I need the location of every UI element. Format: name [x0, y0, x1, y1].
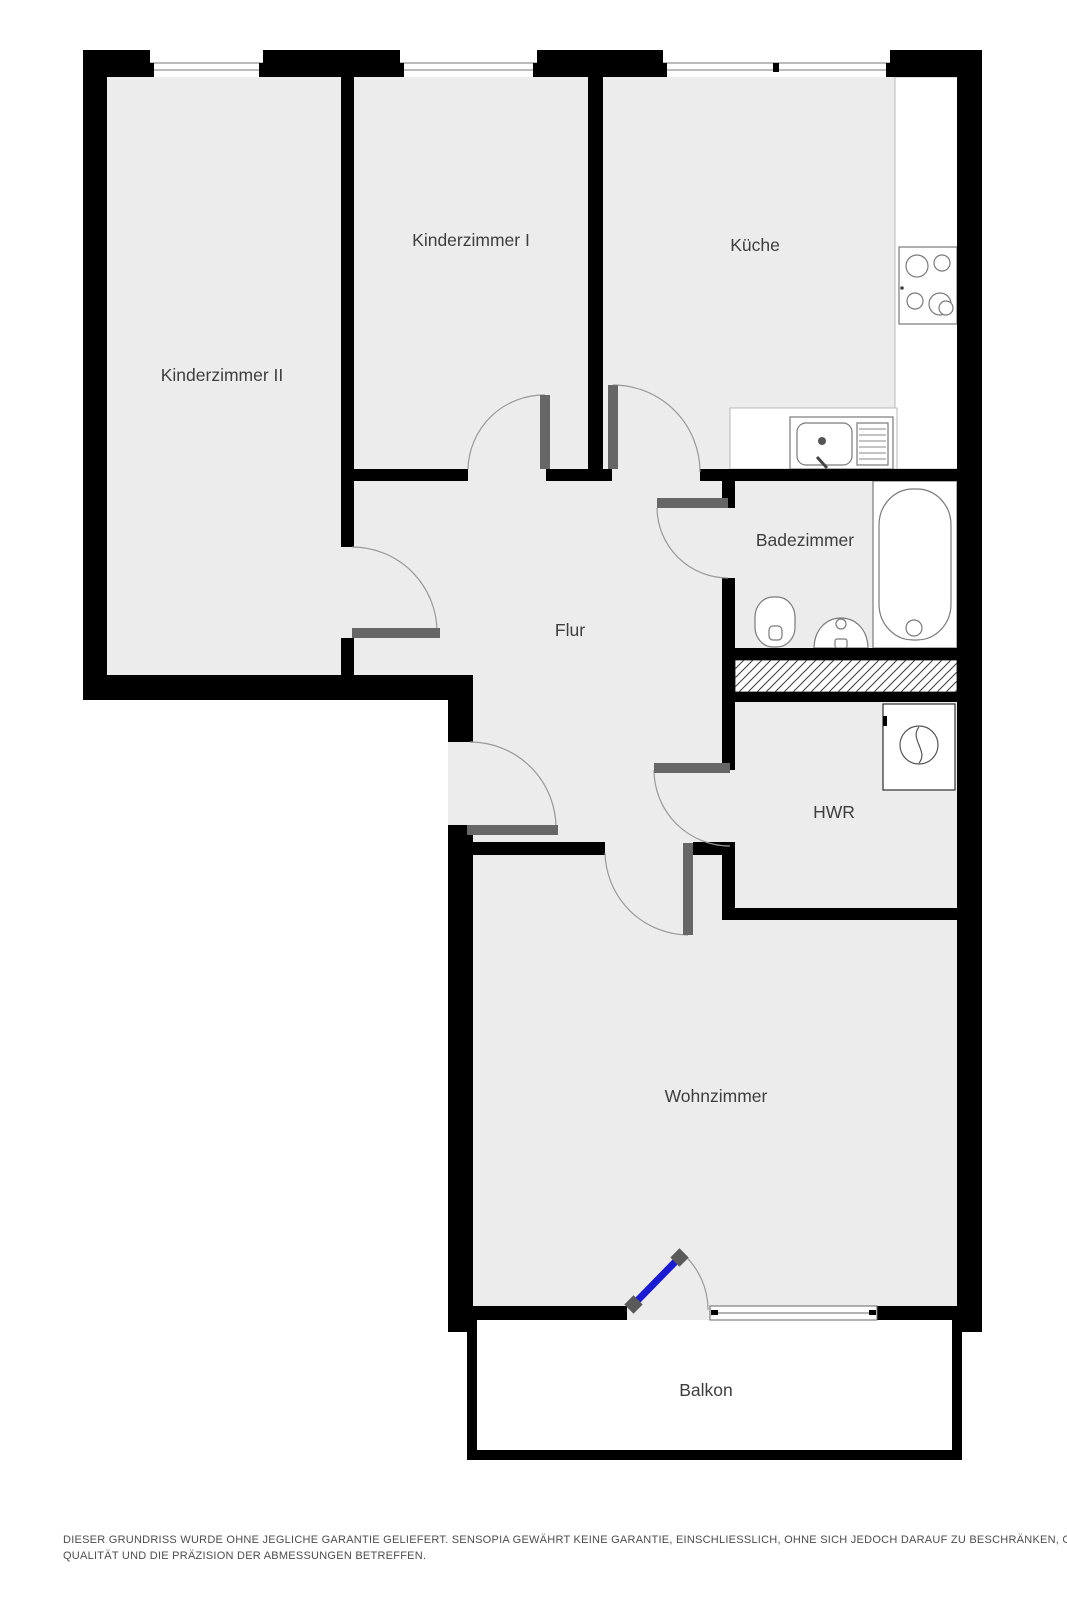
door-leaf-wohnzimmer [683, 843, 693, 935]
stove-burner [907, 293, 923, 309]
window-kinderzimmer1 [400, 50, 537, 77]
room-label-badezimmer: Badezimmer [756, 530, 854, 550]
stove-knob [900, 286, 904, 290]
floorplan-page: Kinderzimmer II Kinderzimmer I Küche Bad… [0, 0, 1067, 1600]
wall-hwr-bottom [722, 908, 957, 920]
wall-left-upper [83, 50, 107, 700]
wall-balcony-right [952, 1320, 962, 1460]
window-kinderzimmer2 [150, 50, 263, 77]
washbasin-faucet [835, 639, 847, 648]
room-label-kinderzimmer2: Kinderzimmer II [161, 365, 284, 385]
door-leaf-kinderzimmer1 [540, 395, 550, 469]
kitchen-sink [790, 417, 893, 469]
room-label-balkon: Balkon [679, 1380, 733, 1400]
room-label-wohnzimmer: Wohnzimmer [665, 1086, 768, 1106]
wall-wohnzimmer-bottom [448, 1306, 627, 1320]
room-label-kueche: Küche [730, 235, 780, 255]
wall-flur-top [341, 469, 468, 481]
wall-left-lower [448, 825, 473, 1332]
stove-burner [934, 255, 950, 271]
wall-right [957, 50, 982, 1332]
room-label-hwr: HWR [813, 802, 855, 822]
washbasin-drain [836, 619, 846, 629]
room-label-flur: Flur [555, 620, 585, 640]
wall-bad-left [722, 578, 735, 702]
toilet [755, 597, 795, 647]
disclaimer-line-1: DIESER GRUNDRISS WURDE OHNE JEGLICHE GAR… [63, 1534, 1067, 1546]
door-leaf-kueche [608, 385, 618, 469]
wall-balcony-bottom [467, 1450, 962, 1460]
wall-kueche-bad [700, 469, 957, 481]
shaft-hatch [735, 660, 957, 692]
door-leaf-kinderzimmer2 [352, 628, 440, 638]
window-kueche [663, 50, 890, 77]
wall-balcony-left [467, 1320, 477, 1460]
wall-kinderzimmer2-bottom [83, 675, 473, 700]
stove [899, 247, 957, 324]
wall-hwr-left [722, 702, 735, 770]
wall-wohnzimmer-top [470, 842, 605, 855]
door-leaf-badezimmer [657, 498, 728, 508]
room-label-kinderzimmer1: Kinderzimmer I [412, 230, 530, 250]
bathtub [873, 481, 957, 648]
stove-burner [906, 255, 928, 277]
window-wohnzimmer [710, 1306, 877, 1320]
bathtub-drain [906, 620, 922, 636]
door-leaf-entrance [467, 825, 558, 835]
washing-machine [883, 704, 955, 790]
sink-drain [818, 437, 826, 445]
stove-burner [939, 301, 953, 315]
wall-kinderzimmer1-kueche [588, 77, 603, 469]
washing-machine-control [883, 716, 887, 726]
door-leaf-hwr [654, 763, 730, 773]
toilet-flush [769, 626, 782, 640]
disclaimer-line-2: QUALITÄT UND DIE PRÄZISION DER ABMESSUNG… [63, 1550, 426, 1562]
wall-shaft-bottom [722, 692, 957, 702]
wall-bad-bottom [722, 648, 957, 660]
floorplan-drawing: Kinderzimmer II Kinderzimmer I Küche Bad… [0, 0, 1067, 1600]
